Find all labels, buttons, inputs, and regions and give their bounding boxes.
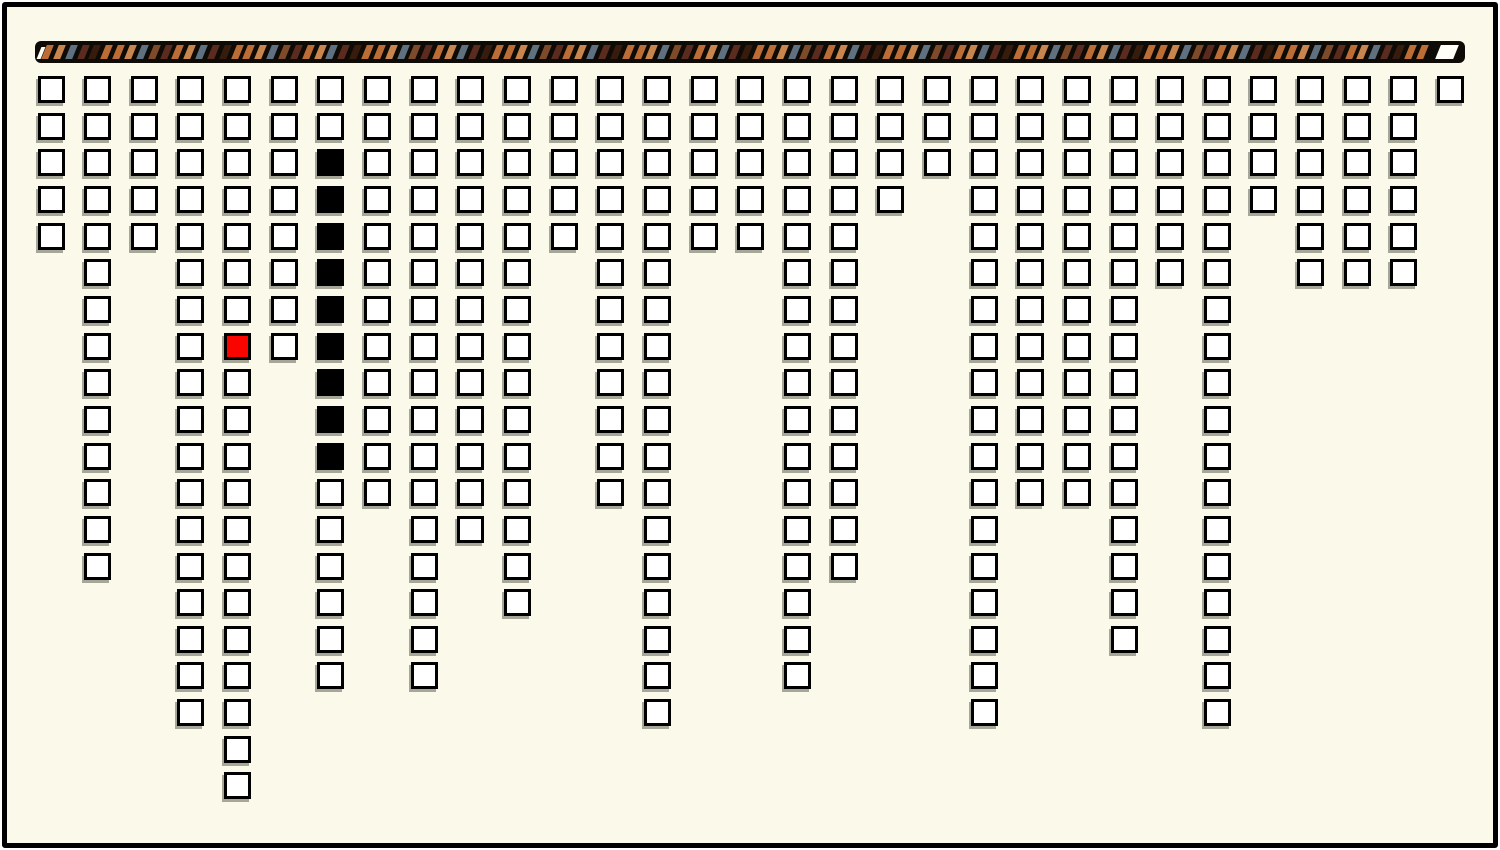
- cell[interactable]: [457, 186, 484, 213]
- cell[interactable]: [224, 296, 251, 323]
- cell[interactable]: [1204, 259, 1231, 286]
- cell[interactable]: [691, 76, 718, 103]
- cell[interactable]: [831, 259, 858, 286]
- cell[interactable]: [364, 479, 391, 506]
- cell[interactable]: [84, 333, 111, 360]
- cell[interactable]: [224, 149, 251, 176]
- cell[interactable]: [597, 369, 624, 396]
- cell[interactable]: [737, 113, 764, 140]
- cell[interactable]: [784, 589, 811, 616]
- cell[interactable]: [831, 76, 858, 103]
- cell[interactable]: [457, 296, 484, 323]
- cell[interactable]: [411, 369, 438, 396]
- cell[interactable]: [1017, 149, 1044, 176]
- cell[interactable]: [1204, 406, 1231, 433]
- cell[interactable]: [784, 113, 811, 140]
- cell[interactable]: [1390, 76, 1417, 103]
- cell[interactable]: [1204, 149, 1231, 176]
- cell[interactable]: [971, 76, 998, 103]
- cell[interactable]: [644, 479, 671, 506]
- cell[interactable]: [644, 516, 671, 543]
- cell[interactable]: [644, 223, 671, 250]
- cell[interactable]: [1204, 516, 1231, 543]
- cell[interactable]: [84, 149, 111, 176]
- cell[interactable]: [1250, 113, 1277, 140]
- cell[interactable]: [971, 333, 998, 360]
- cell[interactable]: [411, 589, 438, 616]
- cell[interactable]: [317, 553, 344, 580]
- cell[interactable]: [411, 259, 438, 286]
- cell[interactable]: [317, 76, 344, 103]
- cell[interactable]: [971, 223, 998, 250]
- cell[interactable]: [1064, 186, 1091, 213]
- cell[interactable]: [224, 479, 251, 506]
- cell[interactable]: [1064, 223, 1091, 250]
- cell[interactable]: [1157, 149, 1184, 176]
- cell[interactable]: [737, 186, 764, 213]
- cell[interactable]: [1157, 186, 1184, 213]
- cell[interactable]: [1204, 76, 1231, 103]
- cell[interactable]: [504, 516, 531, 543]
- cell[interactable]: [504, 223, 531, 250]
- cell[interactable]: [177, 516, 204, 543]
- cell[interactable]: [924, 149, 951, 176]
- cell[interactable]: [271, 76, 298, 103]
- cell[interactable]: [504, 259, 531, 286]
- cell[interactable]: [1157, 113, 1184, 140]
- cell[interactable]: [644, 259, 671, 286]
- cell[interactable]: [38, 113, 65, 140]
- cell[interactable]: [1111, 369, 1138, 396]
- cell[interactable]: [691, 149, 718, 176]
- cell[interactable]: [971, 699, 998, 726]
- cell[interactable]: [364, 296, 391, 323]
- cell[interactable]: [831, 406, 858, 433]
- cell[interactable]: [1017, 443, 1044, 470]
- cell[interactable]: [84, 259, 111, 286]
- cell[interactable]: [831, 369, 858, 396]
- cell[interactable]: [831, 296, 858, 323]
- cell[interactable]: [504, 589, 531, 616]
- cell[interactable]: [1064, 443, 1091, 470]
- cell[interactable]: [411, 149, 438, 176]
- cell[interactable]: [1064, 149, 1091, 176]
- cell[interactable]: [177, 113, 204, 140]
- cell[interactable]: [644, 186, 671, 213]
- cell[interactable]: [1111, 113, 1138, 140]
- cell[interactable]: [364, 406, 391, 433]
- cell[interactable]: [224, 369, 251, 396]
- cell[interactable]: [1204, 296, 1231, 323]
- cell[interactable]: [784, 259, 811, 286]
- cell[interactable]: [38, 149, 65, 176]
- cell[interactable]: [1111, 406, 1138, 433]
- cell[interactable]: [364, 76, 391, 103]
- cell[interactable]: [457, 223, 484, 250]
- cell[interactable]: [971, 369, 998, 396]
- cell[interactable]: [1111, 296, 1138, 323]
- cell[interactable]: [551, 113, 578, 140]
- cell[interactable]: [504, 149, 531, 176]
- filled-cell[interactable]: [317, 443, 344, 470]
- cell[interactable]: [504, 479, 531, 506]
- cell[interactable]: [271, 113, 298, 140]
- cell[interactable]: [38, 223, 65, 250]
- cell[interactable]: [131, 186, 158, 213]
- cell[interactable]: [457, 113, 484, 140]
- cell[interactable]: [971, 479, 998, 506]
- cell[interactable]: [831, 333, 858, 360]
- cell[interactable]: [877, 113, 904, 140]
- cell[interactable]: [457, 479, 484, 506]
- cell[interactable]: [1390, 113, 1417, 140]
- cell[interactable]: [551, 76, 578, 103]
- cell[interactable]: [1064, 113, 1091, 140]
- cell[interactable]: [411, 516, 438, 543]
- cell[interactable]: [84, 76, 111, 103]
- cell[interactable]: [364, 443, 391, 470]
- filled-cell[interactable]: [317, 406, 344, 433]
- cell[interactable]: [131, 149, 158, 176]
- cell[interactable]: [84, 516, 111, 543]
- cell[interactable]: [1064, 259, 1091, 286]
- cell[interactable]: [877, 149, 904, 176]
- cell[interactable]: [224, 772, 251, 799]
- filled-cell[interactable]: [317, 223, 344, 250]
- cell[interactable]: [784, 149, 811, 176]
- cell[interactable]: [644, 113, 671, 140]
- cell[interactable]: [971, 662, 998, 689]
- cell[interactable]: [971, 406, 998, 433]
- cell[interactable]: [784, 406, 811, 433]
- cell[interactable]: [411, 479, 438, 506]
- cell[interactable]: [38, 76, 65, 103]
- cell[interactable]: [597, 149, 624, 176]
- cell[interactable]: [1017, 186, 1044, 213]
- cell[interactable]: [1111, 589, 1138, 616]
- cell[interactable]: [1111, 626, 1138, 653]
- cell[interactable]: [177, 296, 204, 323]
- cell[interactable]: [457, 333, 484, 360]
- cell[interactable]: [317, 113, 344, 140]
- cell[interactable]: [1344, 259, 1371, 286]
- cell[interactable]: [1390, 149, 1417, 176]
- cell[interactable]: [971, 443, 998, 470]
- cell[interactable]: [1437, 76, 1464, 103]
- cell[interactable]: [784, 516, 811, 543]
- cell[interactable]: [224, 186, 251, 213]
- cell[interactable]: [317, 479, 344, 506]
- cell[interactable]: [271, 186, 298, 213]
- cell[interactable]: [84, 223, 111, 250]
- cell[interactable]: [644, 333, 671, 360]
- cell[interactable]: [504, 296, 531, 323]
- cell[interactable]: [1064, 406, 1091, 433]
- cell[interactable]: [1017, 223, 1044, 250]
- cell[interactable]: [177, 589, 204, 616]
- cell[interactable]: [971, 626, 998, 653]
- cell[interactable]: [644, 589, 671, 616]
- cell[interactable]: [177, 699, 204, 726]
- cell[interactable]: [784, 553, 811, 580]
- cell[interactable]: [971, 149, 998, 176]
- cell[interactable]: [971, 516, 998, 543]
- cell[interactable]: [784, 369, 811, 396]
- cell[interactable]: [1297, 223, 1324, 250]
- cell[interactable]: [1111, 516, 1138, 543]
- cell[interactable]: [1111, 149, 1138, 176]
- cell[interactable]: [457, 149, 484, 176]
- cell[interactable]: [644, 406, 671, 433]
- cell[interactable]: [1017, 479, 1044, 506]
- cell[interactable]: [411, 113, 438, 140]
- cell[interactable]: [271, 223, 298, 250]
- cell[interactable]: [317, 626, 344, 653]
- cell[interactable]: [411, 553, 438, 580]
- cell[interactable]: [1250, 76, 1277, 103]
- cell[interactable]: [971, 553, 998, 580]
- cell[interactable]: [1344, 113, 1371, 140]
- cell[interactable]: [971, 186, 998, 213]
- cell[interactable]: [84, 369, 111, 396]
- cell[interactable]: [1297, 149, 1324, 176]
- cell[interactable]: [784, 296, 811, 323]
- cell[interactable]: [224, 259, 251, 286]
- cell[interactable]: [1111, 443, 1138, 470]
- cell[interactable]: [84, 113, 111, 140]
- cell[interactable]: [971, 589, 998, 616]
- cell[interactable]: [1017, 406, 1044, 433]
- cell[interactable]: [597, 76, 624, 103]
- cell[interactable]: [364, 369, 391, 396]
- cell[interactable]: [411, 223, 438, 250]
- cell[interactable]: [1250, 186, 1277, 213]
- cell[interactable]: [784, 186, 811, 213]
- cell[interactable]: [1204, 186, 1231, 213]
- cell[interactable]: [597, 186, 624, 213]
- cell[interactable]: [224, 553, 251, 580]
- cell[interactable]: [1297, 259, 1324, 286]
- cell[interactable]: [1111, 223, 1138, 250]
- cell[interactable]: [1017, 259, 1044, 286]
- cell[interactable]: [737, 76, 764, 103]
- cell[interactable]: [84, 406, 111, 433]
- cell[interactable]: [1017, 76, 1044, 103]
- cell[interactable]: [784, 479, 811, 506]
- cell[interactable]: [784, 333, 811, 360]
- cell[interactable]: [1297, 76, 1324, 103]
- cell[interactable]: [551, 223, 578, 250]
- cell[interactable]: [177, 626, 204, 653]
- cell[interactable]: [1204, 553, 1231, 580]
- cell[interactable]: [691, 113, 718, 140]
- cell[interactable]: [177, 443, 204, 470]
- cell[interactable]: [177, 662, 204, 689]
- cell[interactable]: [597, 479, 624, 506]
- filled-cell[interactable]: [317, 259, 344, 286]
- filled-cell[interactable]: [317, 149, 344, 176]
- filled-cell[interactable]: [317, 186, 344, 213]
- cell[interactable]: [1250, 149, 1277, 176]
- cell[interactable]: [831, 113, 858, 140]
- cell[interactable]: [1204, 626, 1231, 653]
- cell[interactable]: [504, 76, 531, 103]
- cursor-cell[interactable]: [224, 333, 251, 360]
- cell[interactable]: [84, 296, 111, 323]
- cell[interactable]: [1204, 443, 1231, 470]
- cell[interactable]: [1297, 113, 1324, 140]
- cell[interactable]: [224, 662, 251, 689]
- cell[interactable]: [644, 662, 671, 689]
- cell[interactable]: [504, 443, 531, 470]
- cell[interactable]: [831, 186, 858, 213]
- cell[interactable]: [411, 626, 438, 653]
- cell[interactable]: [504, 113, 531, 140]
- cell[interactable]: [504, 553, 531, 580]
- cell[interactable]: [224, 736, 251, 763]
- cell[interactable]: [644, 553, 671, 580]
- cell[interactable]: [831, 223, 858, 250]
- cell[interactable]: [1111, 186, 1138, 213]
- cell[interactable]: [177, 553, 204, 580]
- cell[interactable]: [1157, 223, 1184, 250]
- cell[interactable]: [644, 626, 671, 653]
- cell[interactable]: [737, 223, 764, 250]
- cell[interactable]: [1111, 479, 1138, 506]
- cell[interactable]: [831, 149, 858, 176]
- cell[interactable]: [1390, 259, 1417, 286]
- cell[interactable]: [84, 186, 111, 213]
- cell[interactable]: [364, 186, 391, 213]
- cell[interactable]: [1064, 333, 1091, 360]
- cell[interactable]: [411, 406, 438, 433]
- cell[interactable]: [271, 259, 298, 286]
- cell[interactable]: [411, 443, 438, 470]
- cell[interactable]: [131, 76, 158, 103]
- cell[interactable]: [551, 186, 578, 213]
- cell[interactable]: [224, 76, 251, 103]
- cell[interactable]: [38, 186, 65, 213]
- cell[interactable]: [177, 369, 204, 396]
- cell[interactable]: [1111, 333, 1138, 360]
- cell[interactable]: [364, 149, 391, 176]
- cell[interactable]: [457, 259, 484, 286]
- cell[interactable]: [971, 113, 998, 140]
- cell[interactable]: [784, 662, 811, 689]
- cell[interactable]: [131, 223, 158, 250]
- filled-cell[interactable]: [317, 296, 344, 323]
- cell[interactable]: [877, 186, 904, 213]
- cell[interactable]: [1204, 369, 1231, 396]
- cell[interactable]: [131, 113, 158, 140]
- cell[interactable]: [177, 186, 204, 213]
- cell[interactable]: [411, 296, 438, 323]
- cell[interactable]: [411, 76, 438, 103]
- cell[interactable]: [551, 149, 578, 176]
- cell[interactable]: [831, 516, 858, 543]
- cell[interactable]: [1204, 113, 1231, 140]
- cell[interactable]: [971, 259, 998, 286]
- cell[interactable]: [177, 259, 204, 286]
- cell[interactable]: [457, 516, 484, 543]
- cell[interactable]: [597, 259, 624, 286]
- cell[interactable]: [1204, 223, 1231, 250]
- cell[interactable]: [317, 662, 344, 689]
- cell[interactable]: [597, 223, 624, 250]
- cell[interactable]: [1111, 553, 1138, 580]
- cell[interactable]: [504, 186, 531, 213]
- cell[interactable]: [411, 662, 438, 689]
- cell[interactable]: [271, 333, 298, 360]
- cell[interactable]: [924, 76, 951, 103]
- cell[interactable]: [1204, 333, 1231, 360]
- cell[interactable]: [1064, 76, 1091, 103]
- cell[interactable]: [84, 479, 111, 506]
- cell[interactable]: [84, 553, 111, 580]
- cell[interactable]: [1064, 296, 1091, 323]
- cell[interactable]: [1157, 259, 1184, 286]
- cell[interactable]: [317, 589, 344, 616]
- cell[interactable]: [924, 113, 951, 140]
- cell[interactable]: [1017, 333, 1044, 360]
- cell[interactable]: [1297, 186, 1324, 213]
- cell[interactable]: [1344, 149, 1371, 176]
- filled-cell[interactable]: [317, 369, 344, 396]
- cell[interactable]: [1344, 76, 1371, 103]
- cell[interactable]: [177, 149, 204, 176]
- cell[interactable]: [224, 516, 251, 543]
- cell[interactable]: [224, 443, 251, 470]
- cell[interactable]: [1204, 662, 1231, 689]
- cell[interactable]: [644, 699, 671, 726]
- cell[interactable]: [224, 113, 251, 140]
- cell[interactable]: [831, 479, 858, 506]
- cell[interactable]: [1204, 479, 1231, 506]
- cell[interactable]: [644, 76, 671, 103]
- cell[interactable]: [177, 76, 204, 103]
- cell[interactable]: [411, 186, 438, 213]
- cell[interactable]: [411, 333, 438, 360]
- cell[interactable]: [737, 149, 764, 176]
- cell[interactable]: [784, 443, 811, 470]
- cell[interactable]: [597, 443, 624, 470]
- cell[interactable]: [224, 626, 251, 653]
- cell[interactable]: [1111, 259, 1138, 286]
- cell[interactable]: [597, 113, 624, 140]
- cell[interactable]: [504, 333, 531, 360]
- cell[interactable]: [597, 296, 624, 323]
- cell[interactable]: [1111, 76, 1138, 103]
- cell[interactable]: [644, 369, 671, 396]
- cell[interactable]: [1344, 223, 1371, 250]
- cell[interactable]: [457, 369, 484, 396]
- cell[interactable]: [1017, 296, 1044, 323]
- cell[interactable]: [1344, 186, 1371, 213]
- cell[interactable]: [224, 589, 251, 616]
- cell[interactable]: [364, 259, 391, 286]
- cell[interactable]: [597, 406, 624, 433]
- cell[interactable]: [1064, 479, 1091, 506]
- cell[interactable]: [784, 626, 811, 653]
- cell[interactable]: [504, 369, 531, 396]
- cell[interactable]: [1157, 76, 1184, 103]
- cell[interactable]: [784, 76, 811, 103]
- cell[interactable]: [644, 443, 671, 470]
- cell[interactable]: [877, 76, 904, 103]
- cell[interactable]: [644, 149, 671, 176]
- cell[interactable]: [364, 223, 391, 250]
- cell[interactable]: [597, 333, 624, 360]
